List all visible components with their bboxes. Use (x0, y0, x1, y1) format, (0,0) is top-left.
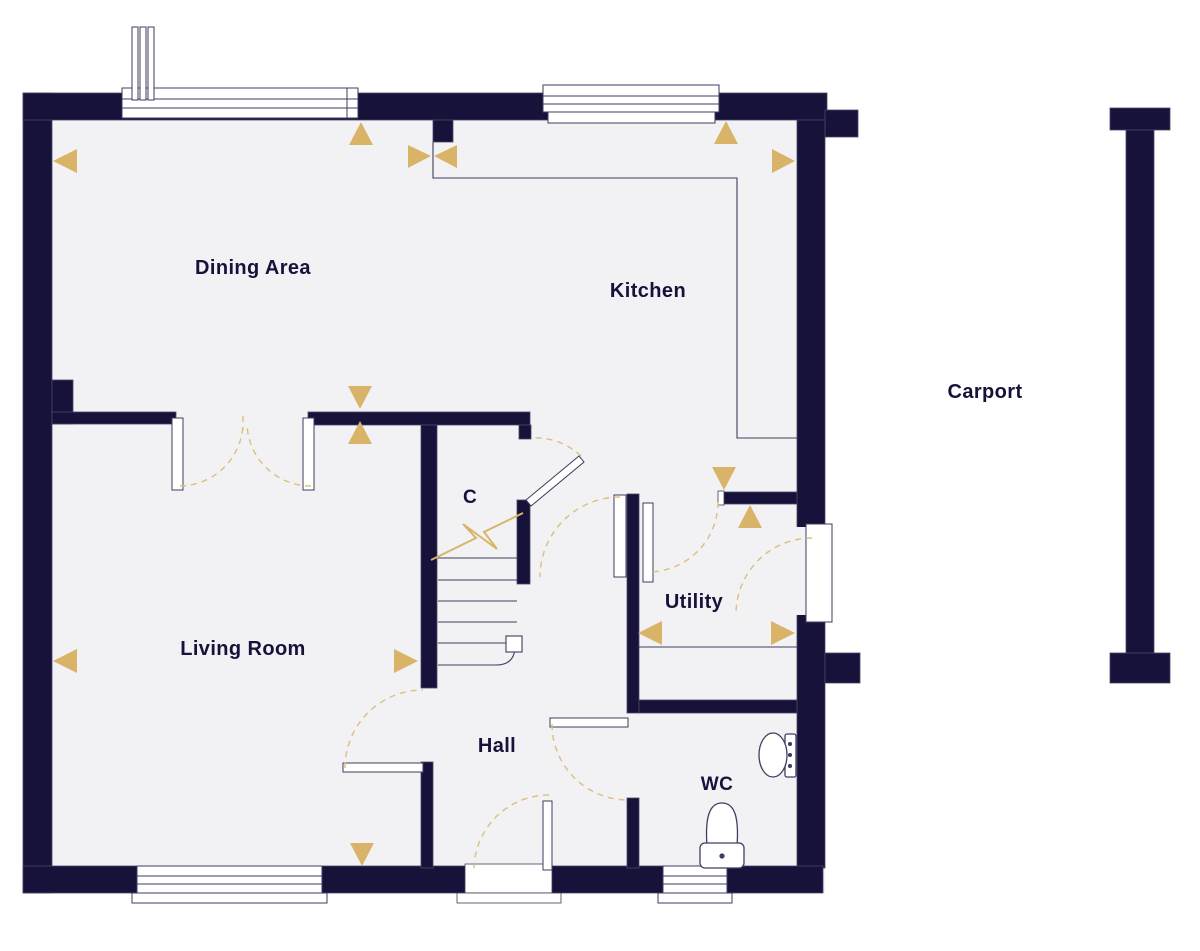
floor-plan-page: Dining Area Kitchen Living Room Hall Uti… (0, 0, 1200, 951)
kitchen-utility-door-leaf (643, 503, 653, 582)
front-door-leaf (543, 801, 552, 870)
room-label-cupboard: C (463, 487, 477, 508)
room-label-utility: Utility (665, 591, 724, 613)
basin-icon (759, 733, 796, 777)
window-icon (543, 85, 719, 123)
living-hall-door-leaf (343, 763, 423, 772)
room-label-hall: Hall (478, 735, 516, 757)
floor-plan: Dining Area Kitchen Living Room Hall Uti… (0, 0, 1200, 951)
window-icon (122, 88, 358, 118)
hall-utility-door-leaf (614, 495, 626, 577)
front-door-step (457, 893, 561, 903)
room-label-wc: WC (701, 774, 733, 795)
flue-icon (132, 27, 154, 100)
room-label-kitchen: Kitchen (610, 280, 686, 302)
front-door-opening (465, 864, 552, 893)
door-jamb (718, 491, 724, 505)
carport-walls (1110, 108, 1170, 683)
room-label-carport: Carport (947, 381, 1022, 403)
window-icon (132, 866, 327, 903)
double-door-right-leaf (303, 418, 314, 490)
room-label-dining: Dining Area (195, 257, 311, 279)
double-door-left-leaf (172, 418, 183, 490)
window-icon (658, 866, 732, 903)
wc-door-leaf (550, 718, 628, 727)
room-label-living: Living Room (180, 638, 306, 660)
